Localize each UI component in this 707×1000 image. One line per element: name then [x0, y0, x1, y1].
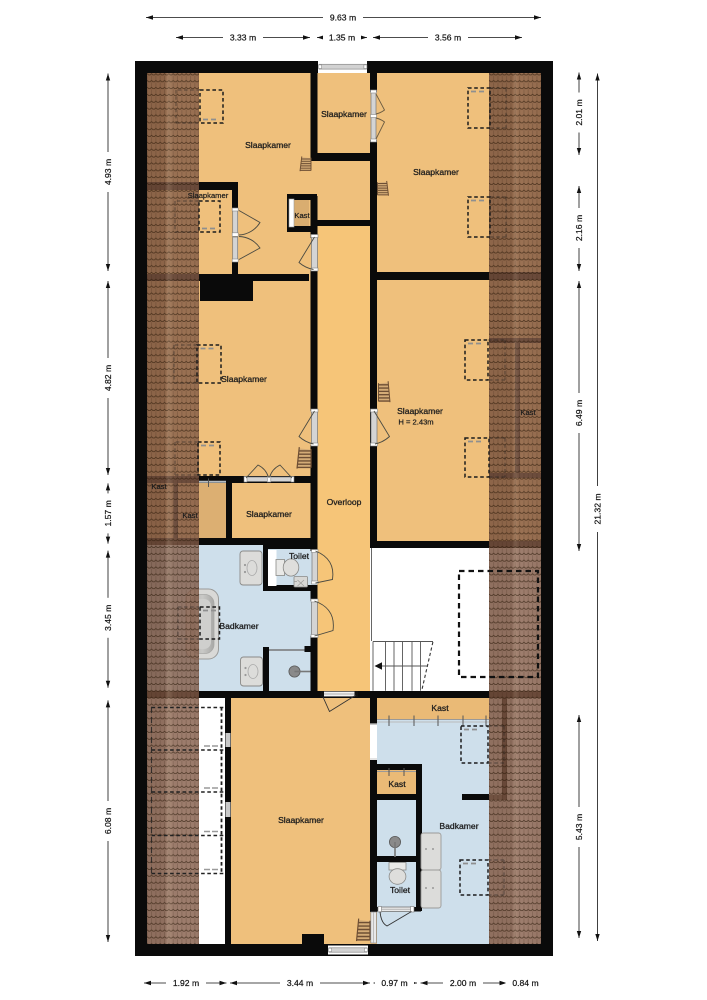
- svg-text:6.49 m: 6.49 m: [574, 400, 584, 426]
- svg-text:Toilet: Toilet: [289, 551, 310, 561]
- svg-text:Kast: Kast: [182, 511, 198, 520]
- svg-text:2.01 m: 2.01 m: [574, 99, 584, 125]
- svg-text:21.32 m: 21.32 m: [593, 493, 603, 524]
- svg-text:4.93 m: 4.93 m: [103, 159, 113, 185]
- svg-text:H = 2.43m: H = 2.43m: [398, 418, 433, 427]
- svg-text:Slaapkamer: Slaapkamer: [278, 815, 324, 825]
- svg-text:2.16 m: 2.16 m: [574, 215, 584, 241]
- svg-text:1.57 m: 1.57 m: [103, 500, 113, 526]
- svg-text:Slaapkamer: Slaapkamer: [321, 109, 367, 119]
- svg-text:Badkamer: Badkamer: [219, 621, 258, 631]
- svg-text:Slaapkamer: Slaapkamer: [246, 509, 292, 519]
- svg-text:3.45 m: 3.45 m: [103, 605, 113, 631]
- svg-text:4.82 m: 4.82 m: [103, 365, 113, 391]
- svg-text:1.92 m: 1.92 m: [173, 978, 199, 988]
- svg-text:Slaapkamer: Slaapkamer: [397, 406, 443, 416]
- svg-text:Overloop: Overloop: [327, 497, 362, 507]
- svg-text:Slaapkamer: Slaapkamer: [188, 191, 229, 200]
- svg-text:3.33 m: 3.33 m: [230, 33, 256, 43]
- svg-text:1.35 m: 1.35 m: [329, 33, 355, 43]
- svg-text:0.84 m: 0.84 m: [512, 978, 538, 988]
- svg-text:Slaapkamer: Slaapkamer: [245, 140, 291, 150]
- svg-text:Kast: Kast: [151, 482, 167, 491]
- svg-text:Kast: Kast: [520, 408, 536, 417]
- svg-text:3.44 m: 3.44 m: [287, 978, 313, 988]
- svg-text:Badkamer: Badkamer: [439, 821, 478, 831]
- svg-text:5.43 m: 5.43 m: [574, 814, 584, 840]
- svg-text:Kast: Kast: [294, 211, 310, 220]
- svg-text:Kast: Kast: [388, 779, 406, 789]
- svg-text:Toilet: Toilet: [390, 885, 411, 895]
- svg-text:3.56 m: 3.56 m: [435, 33, 461, 43]
- svg-text:6.08 m: 6.08 m: [103, 808, 113, 834]
- svg-text:2.00 m: 2.00 m: [450, 978, 476, 988]
- svg-text:0.97 m: 0.97 m: [381, 978, 407, 988]
- svg-text:Slaapkamer: Slaapkamer: [413, 167, 459, 177]
- svg-text:Kast: Kast: [431, 703, 449, 713]
- svg-text:Slaapkamer: Slaapkamer: [221, 374, 267, 384]
- svg-text:9.63 m: 9.63 m: [330, 13, 356, 23]
